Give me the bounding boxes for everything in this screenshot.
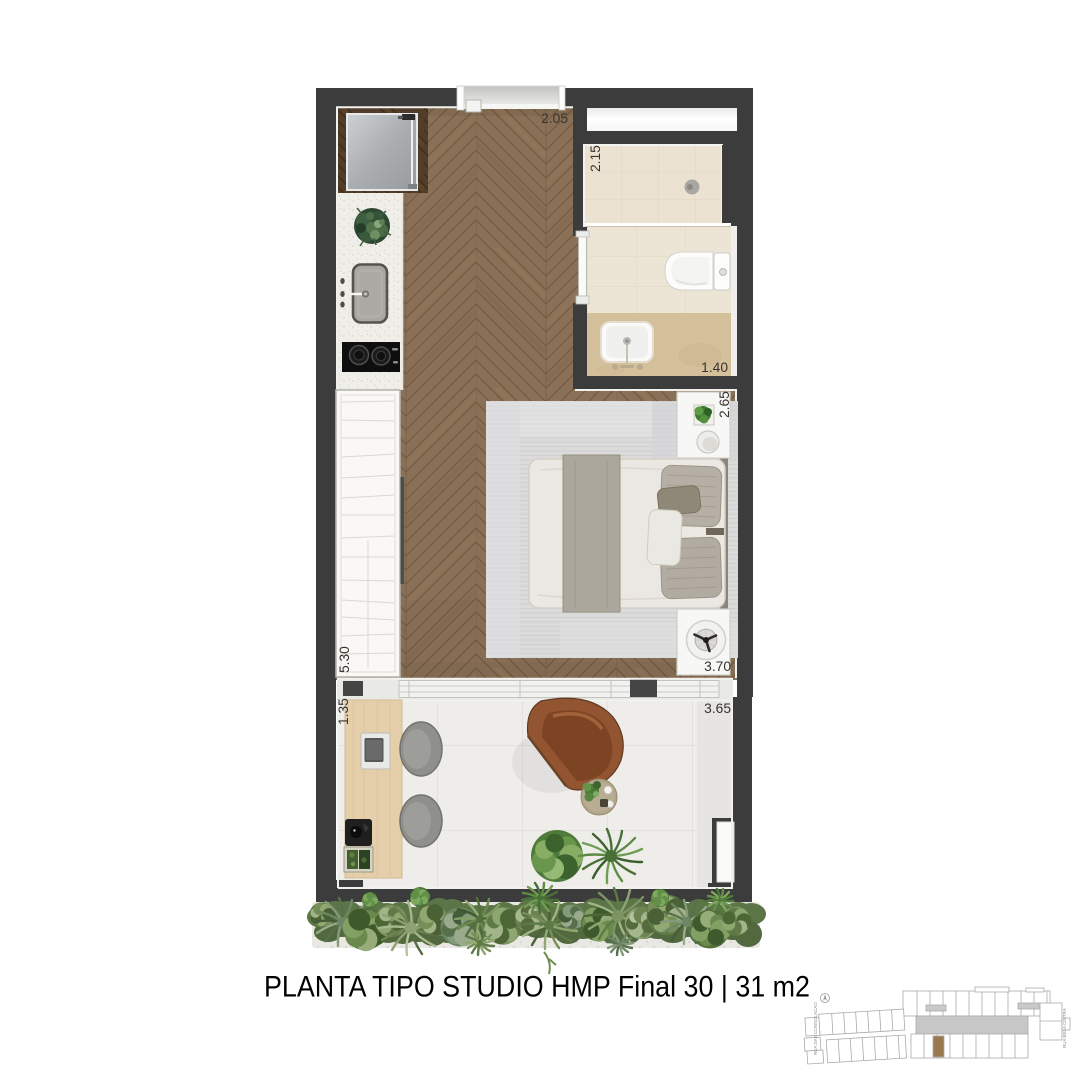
- svg-text:2.65: 2.65: [717, 391, 732, 418]
- svg-text:PLANTA TIPO STUDIO HMP Final 3: PLANTA TIPO STUDIO HMP Final 30 | 31 m2: [264, 971, 810, 1004]
- svg-text:RUA BELA CINTRA: RUA BELA CINTRA: [1062, 1008, 1067, 1048]
- svg-text:3.70: 3.70: [704, 659, 731, 674]
- svg-text:5.30: 5.30: [337, 646, 352, 673]
- svg-text:1.35: 1.35: [336, 698, 351, 725]
- svg-text:2.05: 2.05: [541, 111, 568, 126]
- svg-text:RUA DAS CONSOLACAO: RUA DAS CONSOLACAO: [813, 1002, 818, 1055]
- svg-text:1.40: 1.40: [701, 360, 728, 375]
- svg-text:2.15: 2.15: [588, 145, 603, 172]
- svg-text:3.65: 3.65: [704, 701, 731, 716]
